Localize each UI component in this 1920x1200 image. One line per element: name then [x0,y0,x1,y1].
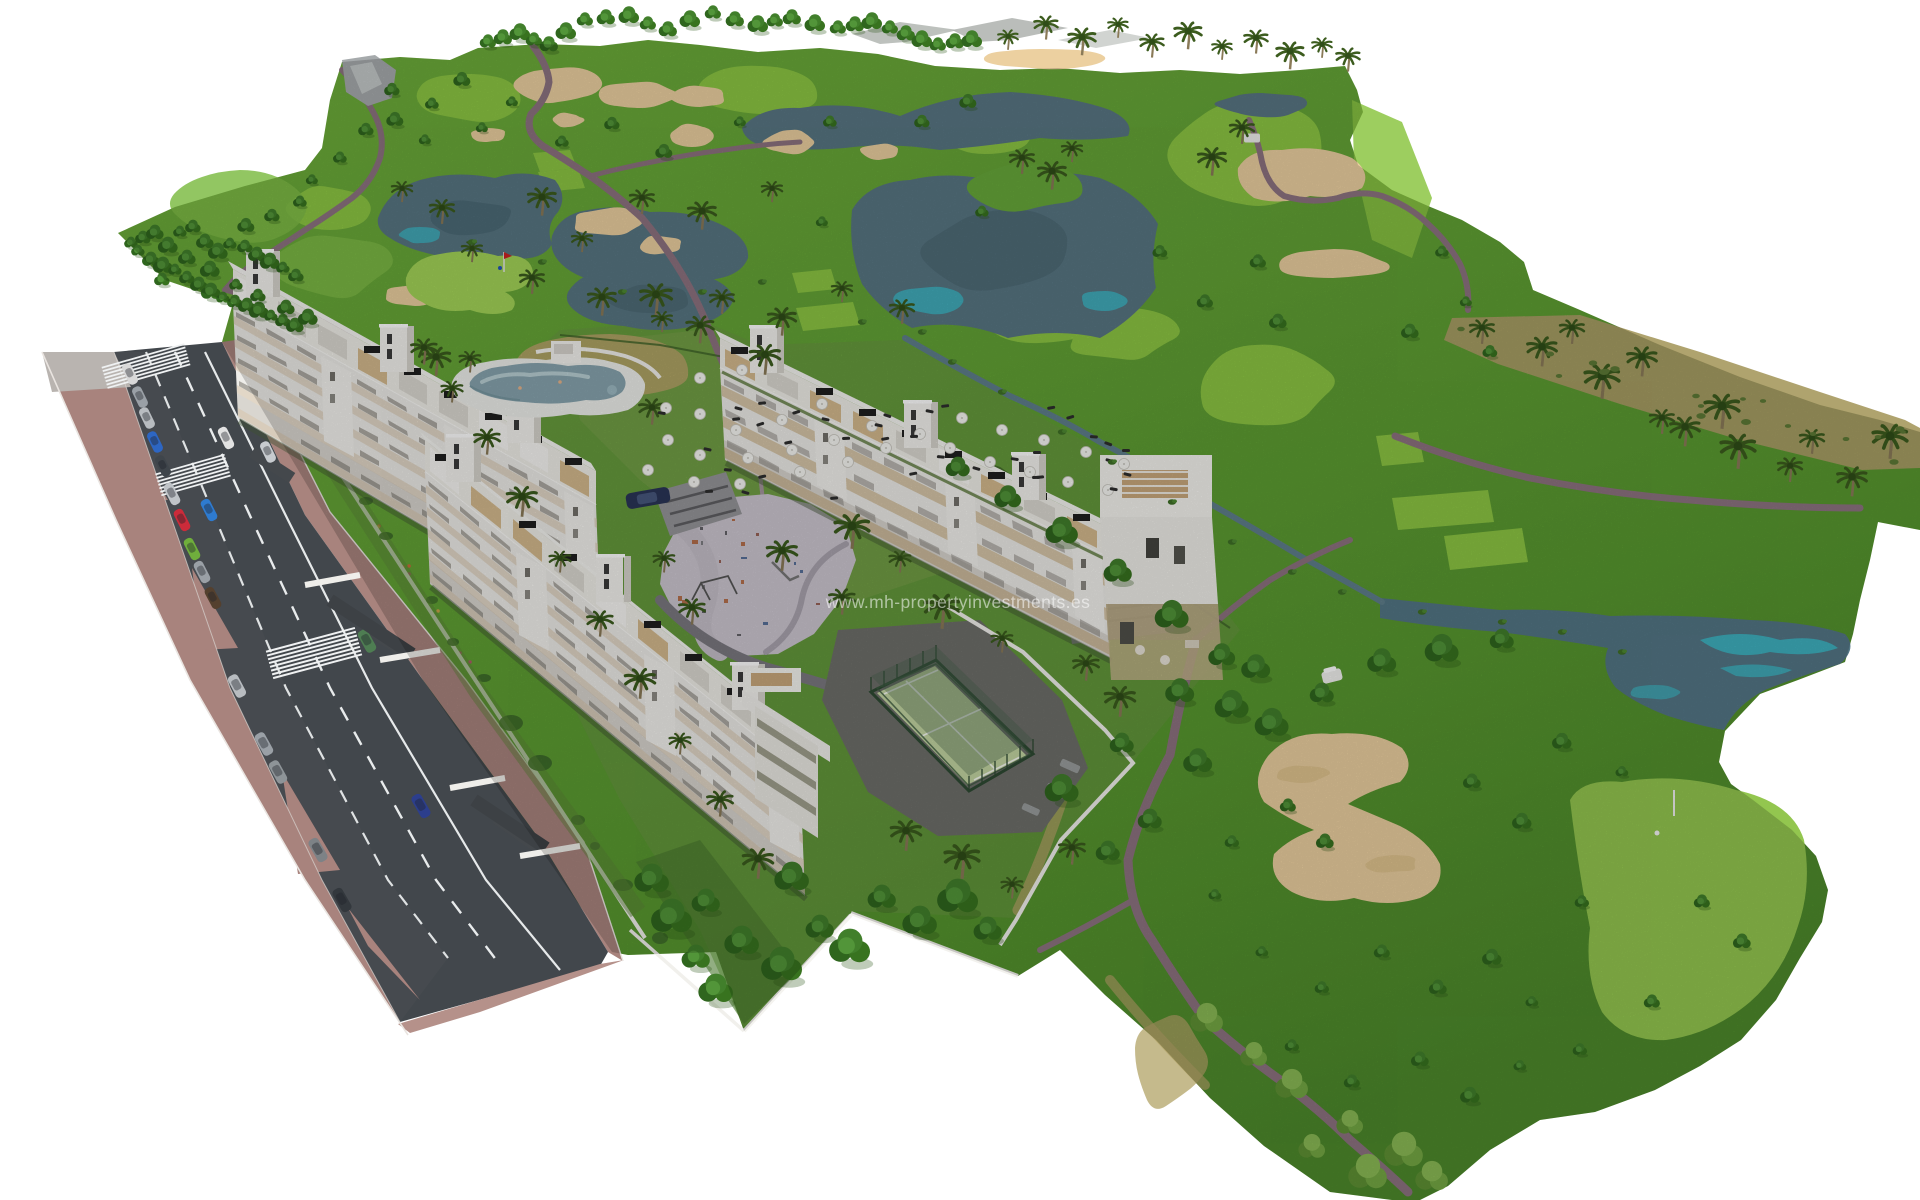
svg-text:www.mh-propertyinvestments.es: www.mh-propertyinvestments.es [825,592,1090,612]
